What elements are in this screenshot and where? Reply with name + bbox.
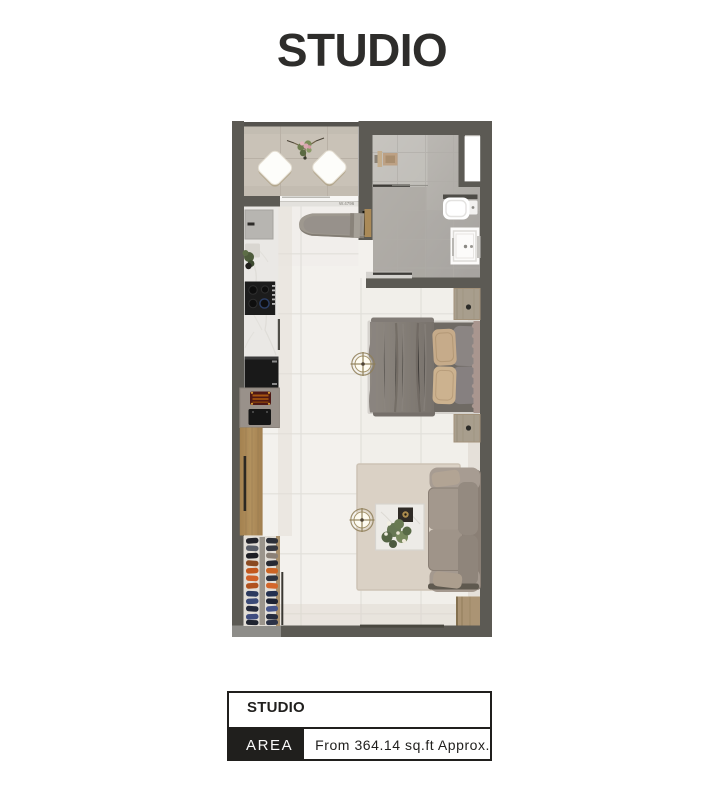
- svg-text:W.4796: W.4796: [339, 201, 355, 206]
